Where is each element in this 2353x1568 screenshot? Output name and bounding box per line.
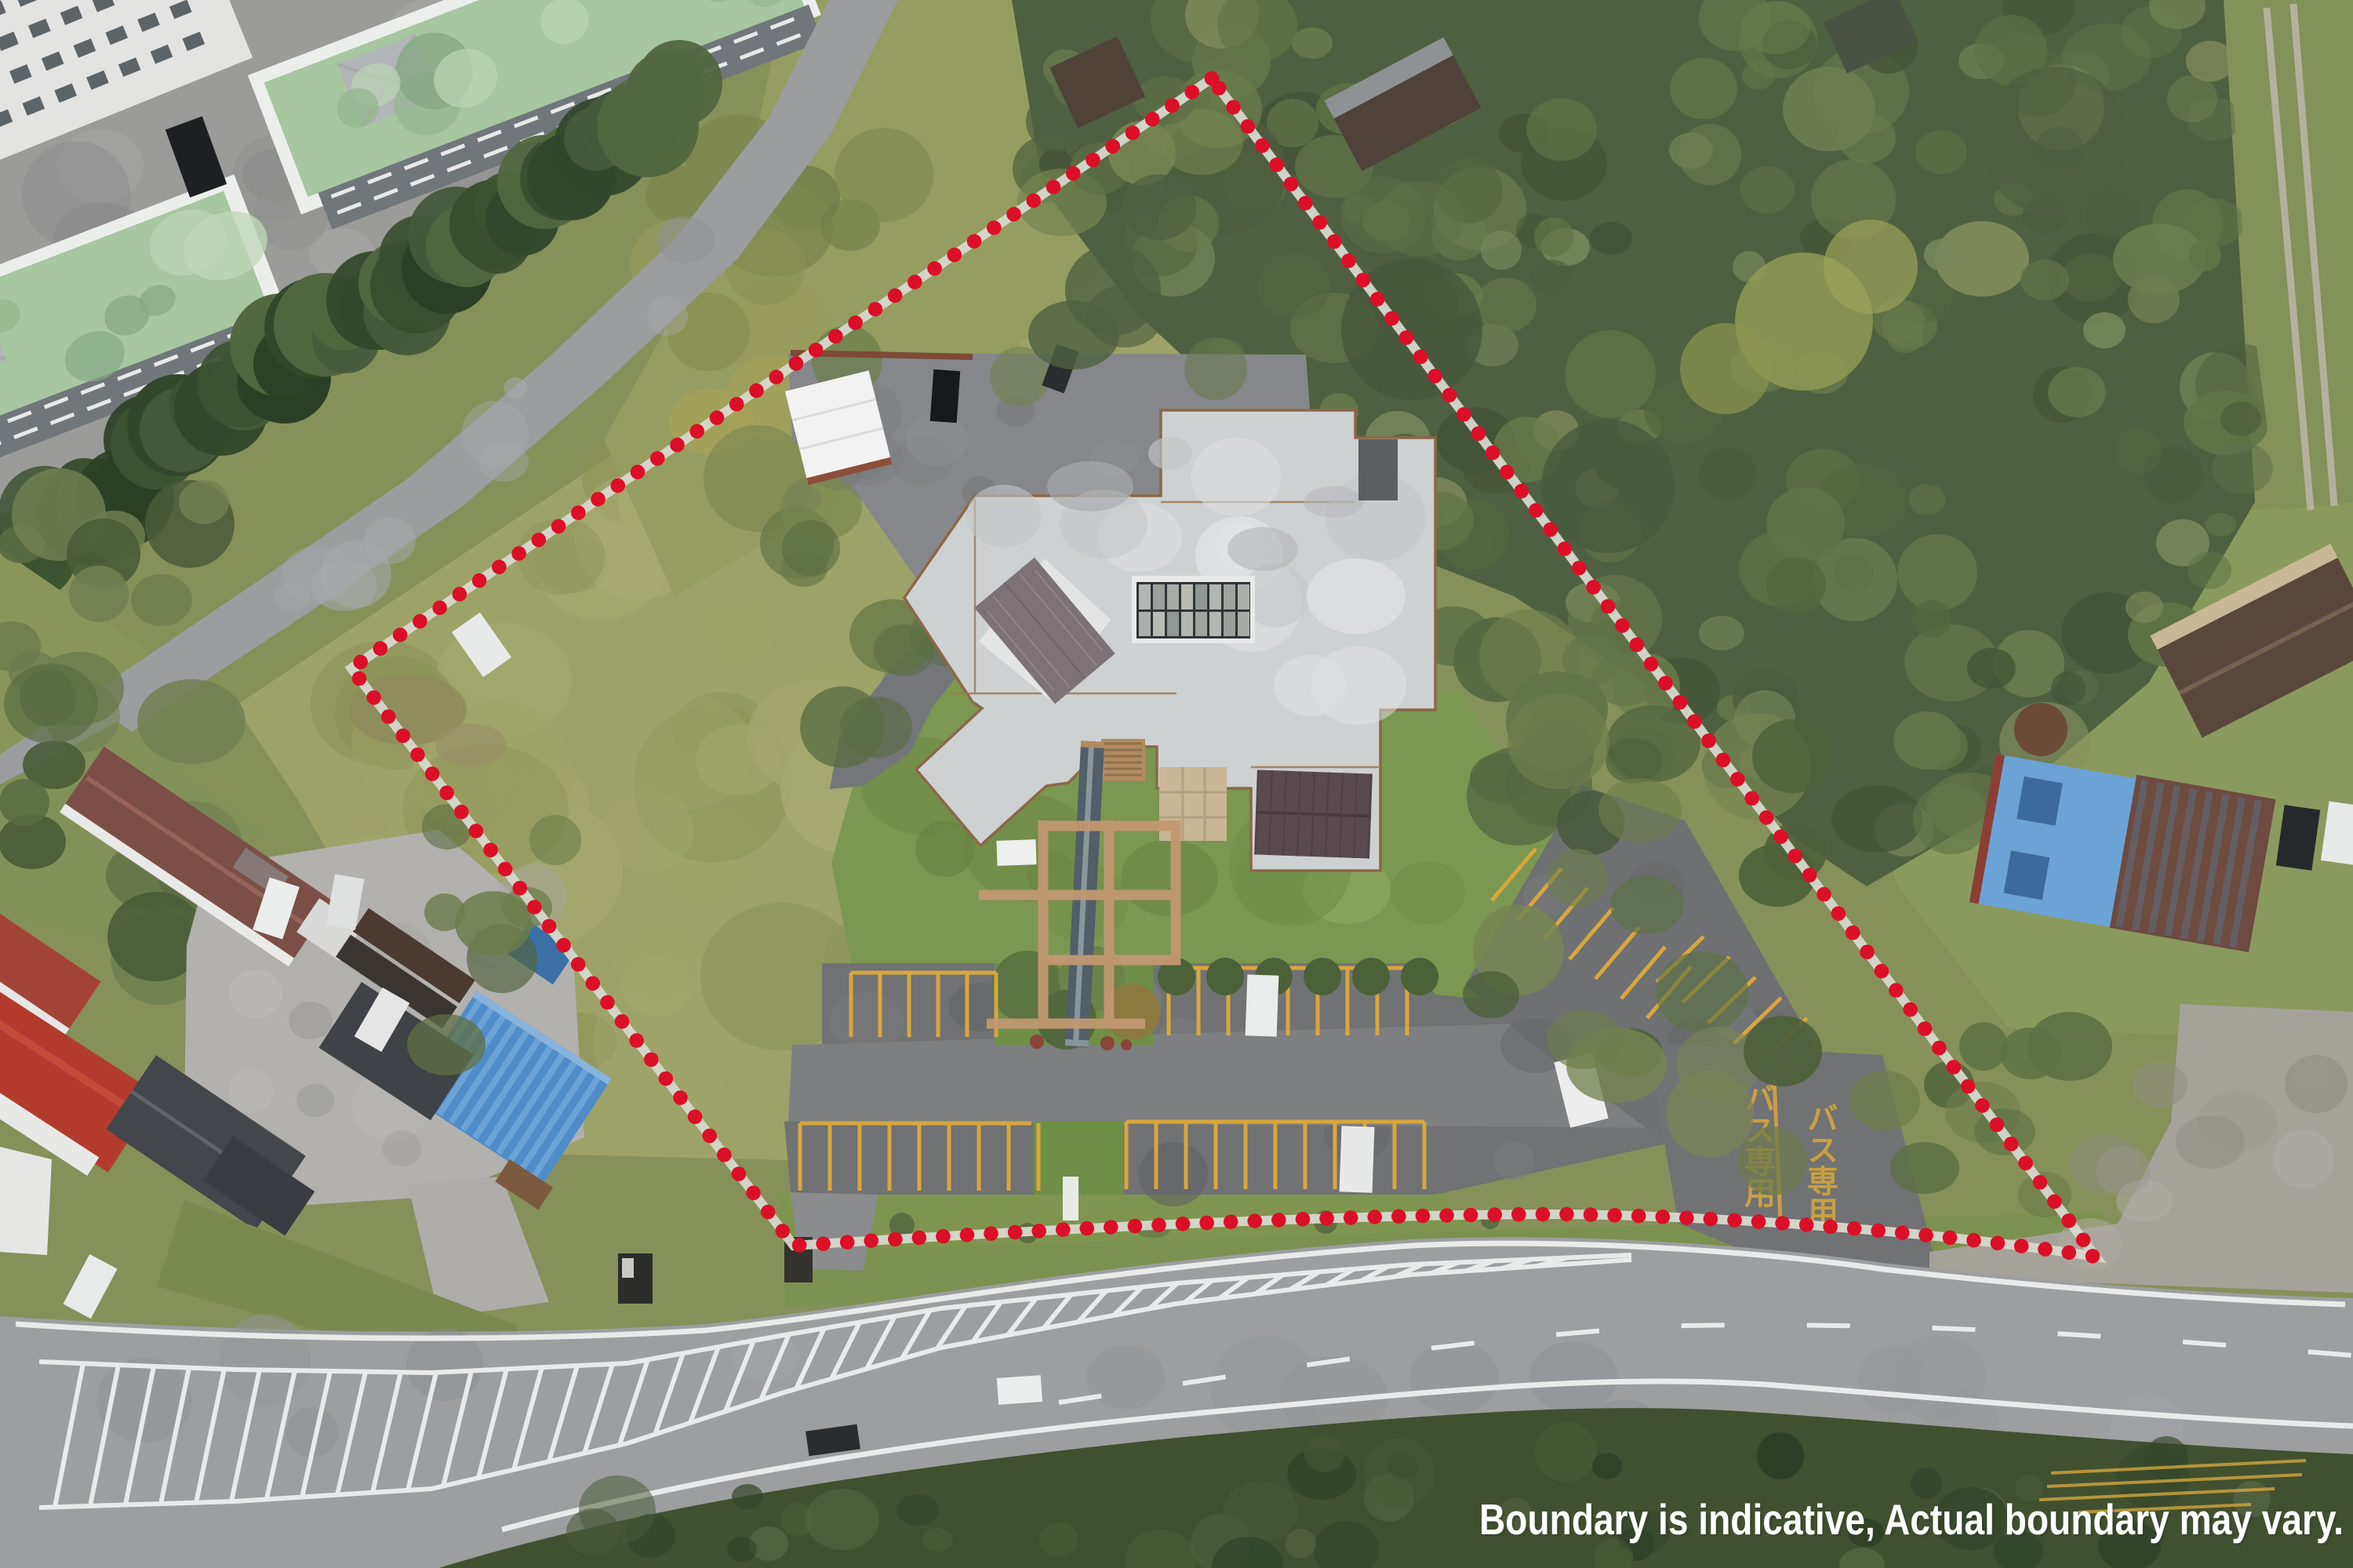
svg-text:Boundary is indicative, Actual: Boundary is indicative, Actual boundary …	[1479, 1495, 2344, 1544]
svg-text:バス専用: バス専用	[1802, 1102, 1838, 1228]
